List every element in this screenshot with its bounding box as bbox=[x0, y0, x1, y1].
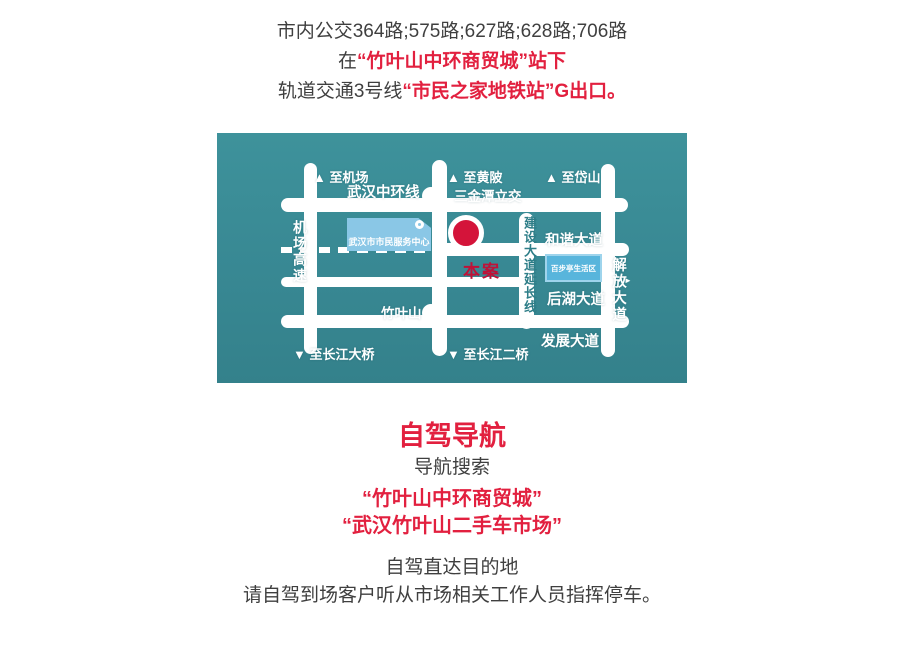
site-marker-label: 本案 bbox=[463, 257, 501, 282]
roundabout-zhuyeshan bbox=[422, 304, 440, 322]
nav-search-subtitle: 导航搜索 bbox=[0, 452, 904, 479]
citizen-center-block: 武汉市市民服务中心 bbox=[347, 218, 431, 251]
driving-nav-title: 自驾导航 bbox=[0, 414, 904, 453]
label-sanjintan-interchange: 三金潭立交 bbox=[454, 185, 522, 205]
metro-prefix: 轨道交通3号线 bbox=[278, 81, 403, 102]
arrow-right-icon: ► bbox=[624, 276, 632, 285]
label-to-huangpi: ▲ 至黄陂 bbox=[447, 167, 502, 186]
location-map: 武汉市市民服务中心 百步亭生活区 本案 ▲ 至机场 武汉中环线 ▲ 至黄陂 三金… bbox=[217, 133, 687, 383]
bus-stop-line: 在“竹叶山中环商贸城”站下 bbox=[0, 46, 904, 73]
site-marker-icon bbox=[448, 215, 484, 251]
road-houhu-fazhan bbox=[281, 315, 629, 328]
metro-line: 轨道交通3号线“市民之家地铁站”G出口。 bbox=[0, 76, 904, 103]
search-keyword-1: “竹叶山中环商贸城” bbox=[0, 482, 904, 511]
label-fazhan-avenue: 发展大道 bbox=[541, 330, 599, 351]
citizen-center-label: 武汉市市民服务中心 bbox=[347, 235, 431, 248]
label-houhu-avenue: 后湖大道 bbox=[547, 288, 605, 309]
search-keyword-2: “武汉竹叶山二手车市场” bbox=[0, 509, 904, 538]
label-to-changjiang-bridge: ▼ 至长江大桥 bbox=[293, 344, 374, 363]
roundabout-sanjintan bbox=[422, 187, 440, 205]
driving-note-1: 自驾直达目的地 bbox=[0, 552, 904, 579]
baibuting-label: 百步亭生活区 bbox=[551, 263, 596, 274]
label-hexie-avenue: 和谐大道 bbox=[545, 229, 603, 250]
label-to-changjiang-bridge2: ▼ 至长江二桥 bbox=[447, 344, 528, 363]
label-jianshe-extension: 建设大道延长线 bbox=[520, 216, 539, 314]
circle-icon bbox=[415, 220, 424, 229]
baibuting-block: 百步亭生活区 bbox=[545, 254, 602, 282]
label-to-daishan: ▲ 至岱山 bbox=[545, 167, 600, 186]
bus-stop-prefix: 在 bbox=[338, 51, 357, 72]
bus-stop-highlight: “竹叶山中环商贸城”站下 bbox=[357, 51, 566, 72]
label-airport-expressway: 机场高速 bbox=[290, 220, 310, 284]
label-zhuyeshan: 竹叶山 bbox=[381, 302, 422, 322]
label-jiefang-avenue: 解放大道 bbox=[608, 257, 629, 323]
metro-highlight: “市民之家地铁站”G出口。 bbox=[402, 81, 626, 102]
label-zhonghuan-ring: 武汉中环线 bbox=[347, 181, 420, 202]
driving-note-2: 请自驾到场客户听从市场相关工作人员指挥停车。 bbox=[0, 580, 904, 607]
bus-routes-line: 市内公交364路;575路;627路;628路;706路 bbox=[0, 16, 904, 43]
